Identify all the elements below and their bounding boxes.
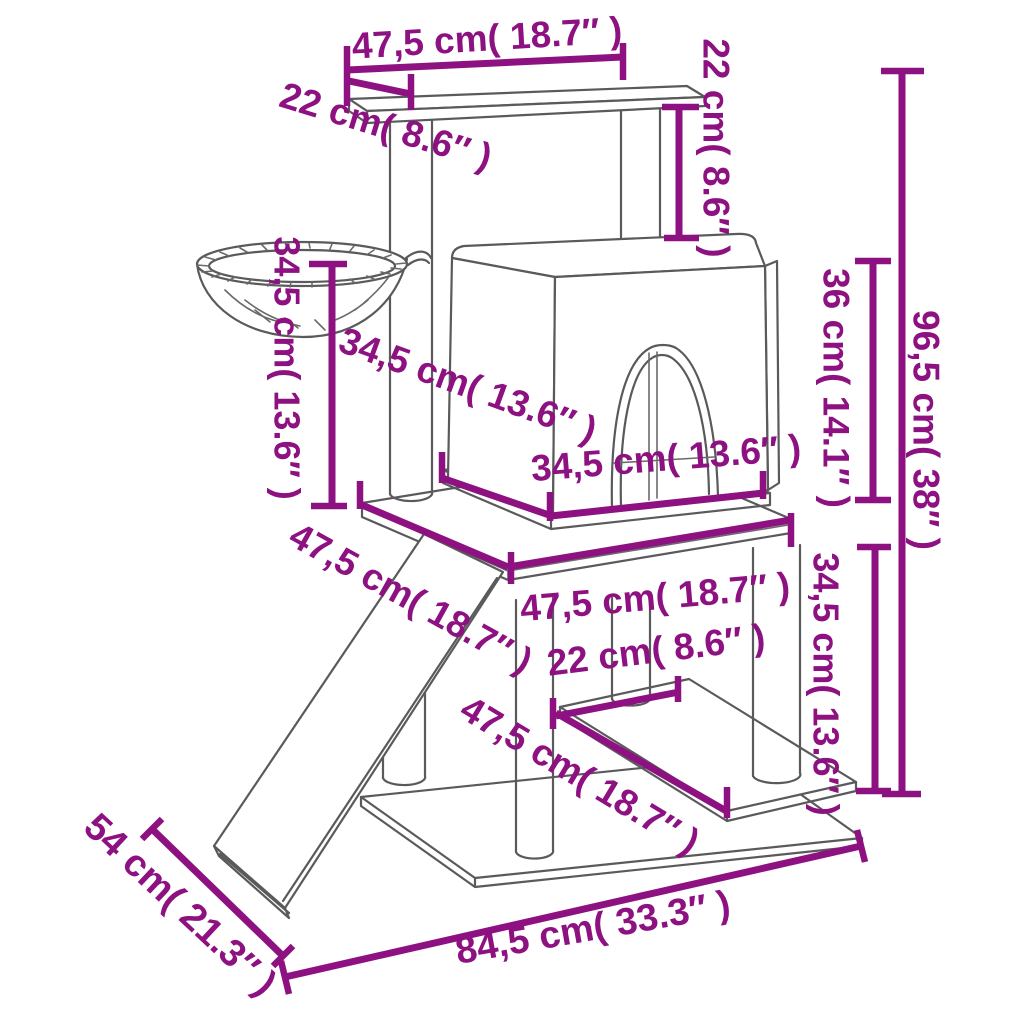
scratching-post bbox=[621, 106, 660, 255]
scratching-post bbox=[390, 118, 432, 501]
dimension-house-height bbox=[855, 261, 891, 500]
dimension-diagram-page: 47,5 cm( 18.7″ ) 22 cm( 8.6″ ) 22 cm( 8.… bbox=[0, 0, 1024, 1024]
dim-label-total-height: 96,5 cm( 38″ ) bbox=[906, 310, 947, 550]
dim-label-post-spacing: 22 cm( 8.6″ ) bbox=[545, 616, 768, 683]
dim-label-house-height: 36 cm( 14.1″ ) bbox=[816, 268, 857, 508]
dimension-lower-tier-height bbox=[856, 547, 891, 791]
basket-hook bbox=[406, 252, 431, 265]
dim-label-base-width: 84,5 cm( 33.3″ ) bbox=[452, 883, 733, 973]
cat-tree-dimension-diagram: 47,5 cm( 18.7″ ) 22 cm( 8.6″ ) 22 cm( 8.… bbox=[0, 0, 1024, 1024]
cat-tree-structure bbox=[197, 86, 862, 918]
dim-label-basket-height: 34,5 cm( 13.6″ ) bbox=[267, 236, 308, 499]
dim-label-lower-tier-height: 34,5 cm( 13.6″ ) bbox=[806, 552, 847, 815]
dim-label-top-gap-height: 22 cm( 8.6″ ) bbox=[696, 38, 737, 257]
basket bbox=[197, 242, 431, 337]
dimension-top-gap-height bbox=[662, 107, 699, 238]
